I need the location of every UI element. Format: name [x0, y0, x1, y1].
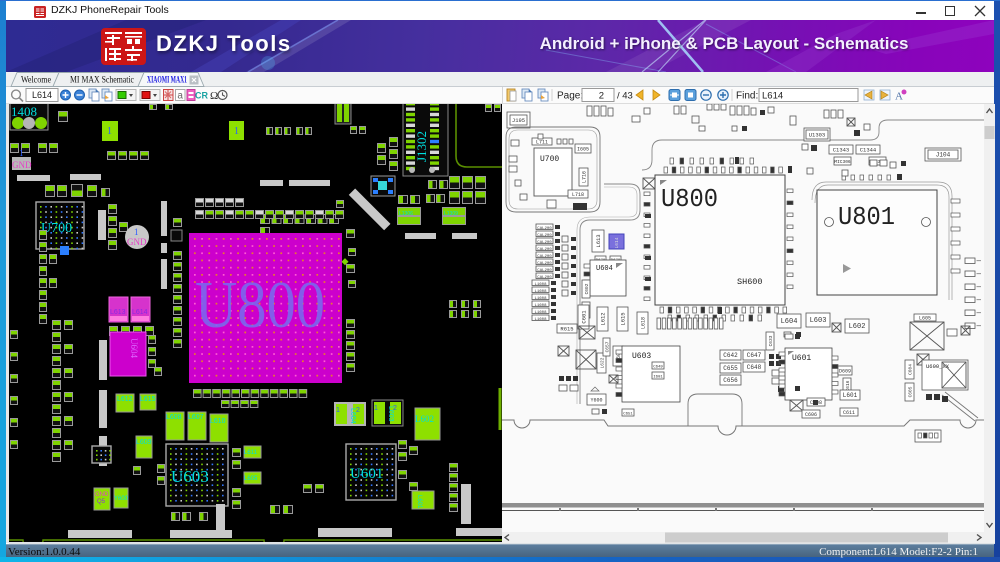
svg-text:1: 1	[19, 148, 24, 158]
svg-text:1: 1	[234, 126, 239, 137]
svg-text:C649: C649	[653, 366, 663, 370]
svg-text:J195: J195	[512, 117, 525, 124]
svg-text:J1302: J1302	[414, 131, 429, 162]
svg-text:2: 2	[599, 91, 604, 102]
svg-text:U603: U603	[171, 467, 209, 486]
svg-text:L1608: L1608	[534, 318, 547, 322]
svg-text:L603: L603	[387, 406, 394, 422]
svg-text:CAL200: CAL200	[537, 262, 552, 266]
svg-text:L622: L622	[600, 357, 606, 368]
svg-text:/ 43: / 43	[617, 91, 633, 102]
svg-text:XIAOMI MAX1: XIAOMI MAX1	[147, 74, 187, 84]
svg-text:C647: C647	[747, 352, 762, 359]
svg-text:C633: C633	[768, 335, 774, 346]
svg-text:1: 1	[107, 126, 112, 137]
svg-text:GND: GND	[12, 160, 32, 170]
svg-text:1: 1	[336, 407, 340, 414]
svg-text:U801: U801	[838, 202, 895, 232]
svg-text:U604: U604	[596, 265, 613, 273]
svg-text:MI MAX Schematic: MI MAX Schematic	[70, 74, 134, 84]
svg-text:Y600: Y600	[590, 398, 602, 404]
svg-text:L609: L609	[136, 439, 152, 446]
svg-text:C601: C601	[581, 310, 588, 324]
svg-text:U700: U700	[540, 155, 559, 164]
svg-text:C651: C651	[623, 413, 633, 417]
svg-text:L602: L602	[415, 414, 434, 424]
svg-text:L1608: L1608	[534, 283, 547, 287]
svg-text:C642: C642	[723, 352, 738, 359]
svg-text:L613: L613	[595, 234, 602, 247]
svg-text:L614: L614	[762, 91, 783, 102]
svg-text:L610: L610	[210, 418, 226, 425]
svg-text:C602: C602	[584, 283, 590, 294]
svg-text:C648: C648	[747, 364, 762, 371]
svg-text:C611: C611	[843, 410, 855, 416]
svg-text:L614: L614	[32, 90, 52, 100]
svg-text:a: a	[177, 91, 183, 102]
svg-text:CAL200: CAL200	[537, 234, 552, 238]
svg-text:L615: L615	[620, 312, 627, 325]
svg-text:L612: L612	[117, 396, 133, 403]
svg-text:L618: L618	[641, 317, 647, 329]
svg-text:U603: U603	[632, 352, 651, 361]
svg-text:L611: L611	[244, 450, 258, 456]
svg-text:MIC306: MIC306	[834, 159, 851, 165]
svg-text:C605: C605	[908, 386, 914, 397]
svg-text:U1303: U1303	[809, 132, 826, 139]
svg-text:C655: C655	[723, 365, 738, 372]
svg-text:L604: L604	[781, 318, 798, 326]
svg-text:U601: U601	[792, 354, 811, 363]
svg-text:L604: L604	[349, 408, 356, 424]
svg-text:CAL200: CAL200	[537, 269, 552, 273]
svg-text:L711: L711	[536, 140, 548, 146]
svg-text:CAL200: CAL200	[537, 241, 552, 245]
svg-text:D609: D609	[839, 369, 851, 375]
svg-text:L1608: L1608	[534, 304, 547, 308]
svg-text:L612: L612	[600, 312, 607, 325]
svg-text:L1608: L1608	[534, 290, 547, 294]
svg-text:L718: L718	[572, 192, 584, 198]
svg-text:L607: L607	[188, 414, 204, 421]
svg-text:L605: L605	[919, 316, 931, 322]
svg-text:L614: L614	[132, 309, 148, 316]
svg-text:Find:: Find:	[736, 91, 758, 102]
svg-text:L1309: L1309	[444, 211, 458, 217]
svg-text:C606: C606	[805, 412, 817, 418]
svg-text:U601: U601	[350, 466, 383, 482]
svg-text:L601: L601	[416, 495, 422, 509]
svg-text:Y600: Y600	[114, 496, 129, 502]
svg-text:GND: GND	[95, 492, 109, 498]
svg-text:L601: L601	[843, 392, 858, 399]
svg-text:I605: I605	[577, 147, 589, 153]
svg-text:C657: C657	[605, 341, 611, 352]
svg-text:C604: C604	[908, 364, 914, 375]
svg-text:C1344: C1344	[860, 147, 877, 154]
svg-text:U800: U800	[661, 184, 718, 214]
svg-text:L1306: L1306	[399, 211, 413, 217]
svg-text:SH600: SH600	[737, 277, 763, 287]
svg-text:GND: GND	[127, 237, 147, 247]
svg-text:L1608: L1608	[534, 297, 547, 301]
svg-text:L613: L613	[110, 309, 126, 316]
svg-text:1: 1	[374, 405, 378, 412]
svg-text:Ω: Ω	[210, 90, 218, 102]
svg-text:1: 1	[134, 227, 139, 237]
svg-text:Welcome: Welcome	[21, 74, 51, 84]
svg-text:C656: C656	[723, 377, 738, 384]
svg-text:J104: J104	[936, 152, 951, 159]
svg-text:U604: U604	[129, 338, 139, 358]
svg-text:U800: U800	[195, 268, 325, 342]
svg-text:C1343: C1343	[833, 147, 850, 154]
svg-text:L1608: L1608	[534, 311, 547, 315]
svg-text:L605: L605	[244, 476, 258, 482]
svg-text:L716: L716	[582, 171, 588, 183]
svg-text:CAL200: CAL200	[537, 276, 552, 280]
svg-text:I601: I601	[653, 376, 663, 380]
svg-text:CAL200: CAL200	[537, 248, 552, 252]
svg-text:Q5: Q5	[97, 499, 106, 505]
svg-text:R615: R615	[560, 326, 573, 333]
svg-text:1408: 1408	[11, 104, 37, 119]
svg-text:L603: L603	[810, 317, 827, 325]
svg-text:CR: CR	[195, 91, 208, 101]
svg-text:L614: L614	[614, 237, 620, 248]
svg-text:Page:: Page:	[557, 91, 583, 102]
svg-text:L615: L615	[140, 396, 156, 403]
svg-text:CAL200: CAL200	[537, 227, 552, 231]
svg-text:L608: L608	[166, 414, 182, 421]
svg-text:L602: L602	[849, 323, 866, 331]
svg-text:CAL200: CAL200	[537, 255, 552, 259]
